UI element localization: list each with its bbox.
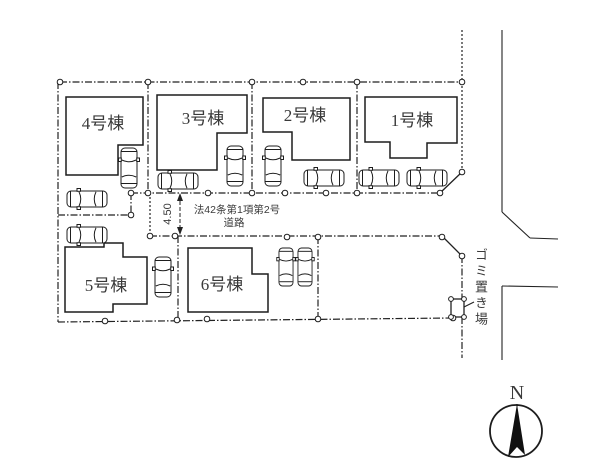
garbage-station-box <box>451 299 464 317</box>
building-2-label: 2号棟 <box>284 106 327 125</box>
road-width-label: 4.50 <box>162 203 174 224</box>
car-icon <box>304 168 344 189</box>
site-plan: 4号棟 3号棟 2号棟 1号棟 5号棟 6号棟 4.5 <box>0 0 600 474</box>
road-name-line1: 法42条第1項第2号 <box>194 203 280 216</box>
car-icon <box>158 171 198 192</box>
car-icon <box>359 168 399 189</box>
car-icon <box>296 248 314 286</box>
car-icon <box>263 146 284 186</box>
car-icon <box>225 146 246 186</box>
car-icon <box>119 148 140 188</box>
building-3-label: 3号棟 <box>182 109 225 128</box>
road-name-line2: 道路 <box>224 216 245 229</box>
building-5-label: 5号棟 <box>85 276 128 295</box>
compass-north-label: N <box>510 382 524 404</box>
building-4-label: 4号棟 <box>82 114 125 133</box>
road-name: 法42条第1項第2号 道路 <box>194 203 280 229</box>
road-width-dimension: 4.50 <box>162 193 183 235</box>
car-icon <box>153 257 174 297</box>
car-icon <box>67 189 107 210</box>
car-icon <box>277 248 295 286</box>
building-1-label: 1号棟 <box>391 111 434 130</box>
site-plan-canvas: 4号棟 3号棟 2号棟 1号棟 5号棟 6号棟 4.5 <box>0 0 600 474</box>
car-icon <box>407 168 447 189</box>
garbage-station-label: ゴミ置き場 <box>471 248 489 328</box>
compass: N <box>490 382 542 457</box>
building-6-label: 6号棟 <box>201 275 244 294</box>
car-icon <box>67 225 107 246</box>
